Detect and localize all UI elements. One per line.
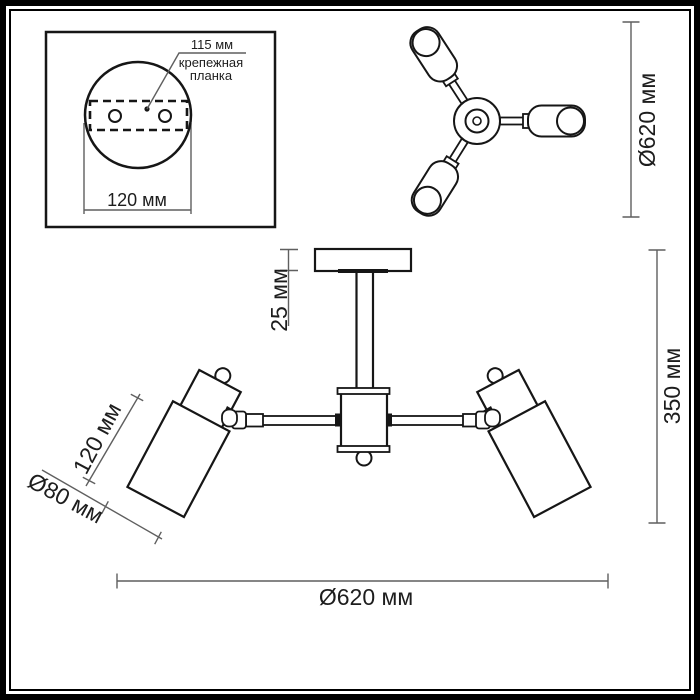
body-bottom-cap — [338, 446, 390, 452]
ceiling-canopy — [315, 249, 411, 271]
left-arm-bar — [253, 416, 339, 425]
screw-hole-right — [159, 110, 171, 122]
mounting-bar-dashed — [90, 101, 187, 130]
stem — [357, 271, 374, 391]
screw-hole-left — [109, 110, 121, 122]
mounting-plate-inset: 115 мм крепежная планка 120 мм — [46, 32, 275, 227]
plate-name-line2: планка — [190, 68, 233, 83]
top-view-diameter-label: Ø620 мм — [634, 73, 660, 167]
shade-end-circle — [557, 108, 584, 135]
drawing-canvas: 115 мм крепежная планка 120 мм — [0, 0, 700, 700]
canopy-flange — [338, 269, 388, 273]
base-diameter-label: 120 мм — [107, 190, 167, 210]
left-arm-cap — [222, 410, 237, 427]
fixture-height-label: 350 мм — [659, 348, 685, 424]
right-arm-bar — [390, 416, 464, 425]
left-arm-connector — [246, 414, 263, 427]
technical-drawing-page: 115 мм крепежная планка 120 мм — [0, 0, 700, 700]
canopy-height-label: 25 мм — [266, 268, 292, 332]
overall-diameter-label: Ø620 мм — [319, 584, 413, 610]
central-body — [341, 390, 387, 448]
right-arm-cap — [485, 410, 500, 427]
body-top-cap — [338, 388, 390, 394]
hub-center-hole — [473, 117, 481, 125]
plate-width-label: 115 мм — [191, 37, 233, 52]
